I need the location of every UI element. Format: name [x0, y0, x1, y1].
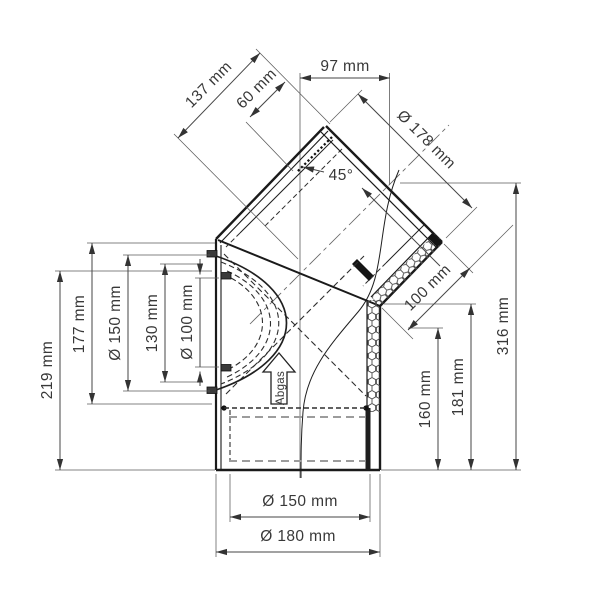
extension-lines — [55, 49, 521, 557]
crimped-end — [297, 137, 332, 172]
section-break-curve — [301, 170, 399, 478]
dim-100-left: Ø 100 mm — [179, 284, 196, 360]
socket-liner-section — [366, 408, 371, 470]
bend-curve-dash-2 — [227, 271, 271, 377]
dim-137: 137 mm — [182, 58, 235, 111]
liner-tab-150-bottom — [207, 387, 217, 394]
dim-line-178 — [358, 94, 472, 208]
liner-tab-100-bottom — [221, 365, 231, 372]
liner-tab-100-top — [221, 273, 231, 280]
dim-150-left: Ø 150 mm — [107, 285, 124, 361]
insulation-strip-vertical — [368, 300, 381, 412]
upper-liner-inner-hidden — [263, 149, 342, 228]
dim-angle-45: 45° — [329, 167, 354, 184]
miter-liner-section — [352, 259, 374, 281]
dimension-lines — [60, 53, 516, 552]
dim-60: 60 mm — [233, 65, 280, 112]
flue-elbow-drawing: Abgas — [0, 0, 600, 600]
inner-liner-lines — [226, 140, 424, 286]
dim-97: 97 mm — [320, 58, 369, 75]
dim-150-bottom: Ø 150 mm — [262, 493, 338, 510]
upper-liner-solid — [240, 140, 333, 233]
dim-180-bottom: Ø 180 mm — [260, 528, 336, 545]
dim-130: 130 mm — [144, 294, 161, 352]
technical-drawing-page: Abgas — [0, 0, 600, 600]
dim-316: 316 mm — [495, 297, 512, 355]
liner-tab-150-top — [207, 251, 217, 258]
flow-label: Abgas — [275, 371, 287, 405]
angle-leader-text — [303, 167, 324, 172]
dim-181: 181 mm — [450, 358, 467, 416]
miter-joint-line — [218, 240, 380, 306]
dim-219: 219 mm — [39, 341, 56, 399]
upper-wall-inner — [220, 131, 328, 243]
dim-160: 160 mm — [417, 370, 434, 428]
dim-177: 177 mm — [71, 295, 88, 353]
dimension-labels: 219 mm 177 mm Ø 150 mm 130 mm Ø 100 mm 1… — [39, 58, 512, 545]
